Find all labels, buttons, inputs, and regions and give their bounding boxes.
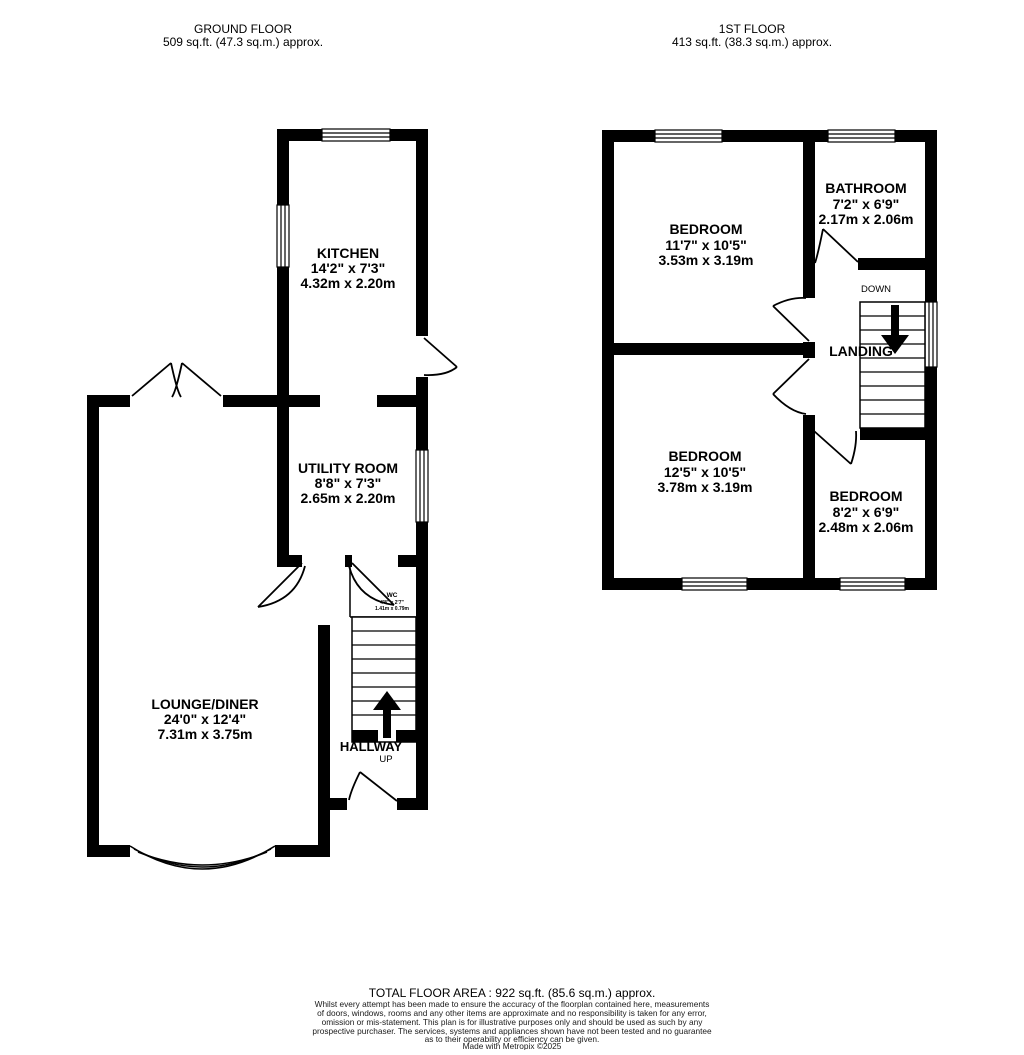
bedroom2-door <box>773 359 809 414</box>
lounge-dim-metric: 7.31m x 3.75m <box>158 726 253 742</box>
kitchen-dim-imperial: 14'2" x 7'3" <box>311 260 385 276</box>
ground-floor-stairs <box>352 617 416 742</box>
bedroom3-dim-imperial: 8'2" x 6'9" <box>833 504 900 520</box>
wc-dim-metric: 1.41m x 0.79m <box>375 606 409 612</box>
bedroom3-door <box>814 431 856 464</box>
bedroom2-label: BEDROOM <box>668 448 741 464</box>
first-floor-labels: BEDROOM 11'7" x 10'5" 3.53m x 3.19m BATH… <box>658 180 914 535</box>
hallway-label: HALLWAY <box>340 739 403 754</box>
kitchen-dim-metric: 4.32m x 2.20m <box>301 275 396 291</box>
up-label: UP <box>379 754 392 765</box>
first-floor-stairs <box>860 302 925 428</box>
bedroom1-dim-imperial: 11'7" x 10'5" <box>665 237 746 253</box>
lounge-label: LOUNGE/DINER <box>151 696 258 712</box>
bathroom-window <box>828 130 895 142</box>
first-floor-title: 1ST FLOOR <box>719 22 786 36</box>
utility-dim-imperial: 8'8" x 7'3" <box>315 475 382 491</box>
bedroom3-label: BEDROOM <box>829 488 902 504</box>
wc-label: WC <box>387 592 398 599</box>
down-label: DOWN <box>861 284 891 295</box>
footer: TOTAL FLOOR AREA : 922 sq.ft. (85.6 sq.m… <box>312 986 712 1050</box>
utility-label: UTILITY ROOM <box>298 460 398 476</box>
bedroom2-dim-imperial: 12'5" x 10'5" <box>664 464 746 480</box>
total-floor-area: TOTAL FLOOR AREA : 922 sq.ft. (85.6 sq.m… <box>369 986 656 1000</box>
front-door <box>349 772 397 801</box>
kitchen-top-window <box>322 129 390 141</box>
utility-dim-metric: 2.65m x 2.20m <box>301 490 396 506</box>
bedroom3-dim-metric: 2.48m x 2.06m <box>819 519 914 535</box>
bedroom1-door <box>773 298 809 341</box>
bedroom1-label: BEDROOM <box>669 221 742 237</box>
first-floor-plan: BEDROOM 11'7" x 10'5" 3.53m x 3.19m BATH… <box>602 130 937 590</box>
bedroom2-window <box>682 578 747 590</box>
ground-floor-title: GROUND FLOOR <box>194 22 292 36</box>
utility-window <box>416 450 428 522</box>
ground-floor-plan: KITCHEN 14'2" x 7'3" 4.32m x 2.20m UTILI… <box>87 129 457 869</box>
bedroom1-window <box>655 130 722 142</box>
first-floor-header: 1ST FLOOR 413 sq.ft. (38.3 sq.m.) approx… <box>672 22 832 49</box>
ground-floor-area: 509 sq.ft. (47.3 sq.m.) approx. <box>163 35 323 49</box>
bedroom1-dim-metric: 3.53m x 3.19m <box>659 252 754 268</box>
bathroom-dim-metric: 2.17m x 2.06m <box>819 211 914 227</box>
lounge-double-doors <box>132 363 221 397</box>
kitchen-label: KITCHEN <box>317 245 379 261</box>
ground-floor-header: GROUND FLOOR 509 sq.ft. (47.3 sq.m.) app… <box>163 22 323 49</box>
landing-window <box>925 302 937 367</box>
credit-line: Made with Metropix ©2025 <box>463 1041 562 1050</box>
bathroom-dim-imperial: 7'2" x 6'9" <box>833 196 900 212</box>
landing-label: LANDING <box>829 343 893 359</box>
utility-door <box>258 563 305 607</box>
kitchen-left-window <box>277 205 289 267</box>
kitchen-back-door <box>424 338 457 375</box>
bathroom-label: BATHROOM <box>825 180 906 196</box>
bedroom2-dim-metric: 3.78m x 3.19m <box>658 479 753 495</box>
first-floor-area: 413 sq.ft. (38.3 sq.m.) approx. <box>672 35 832 49</box>
lounge-dim-imperial: 24'0" x 12'4" <box>164 711 246 727</box>
floorplan-page: GROUND FLOOR 509 sq.ft. (47.3 sq.m.) app… <box>0 0 1024 1050</box>
bedroom3-window <box>840 578 905 590</box>
floorplan-svg: GROUND FLOOR 509 sq.ft. (47.3 sq.m.) app… <box>0 0 1024 1050</box>
bathroom-door <box>815 229 858 263</box>
bay-window <box>130 846 275 869</box>
